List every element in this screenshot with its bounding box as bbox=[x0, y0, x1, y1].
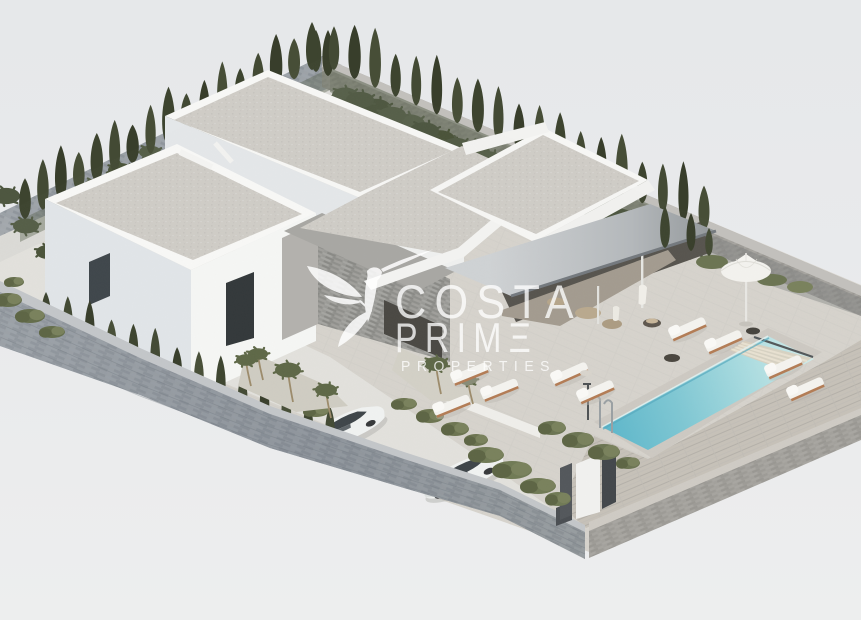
svg-text:PROPERTIES: PROPERTIES bbox=[401, 358, 556, 375]
svg-text:PRIMΞ: PRIMΞ bbox=[395, 314, 538, 361]
